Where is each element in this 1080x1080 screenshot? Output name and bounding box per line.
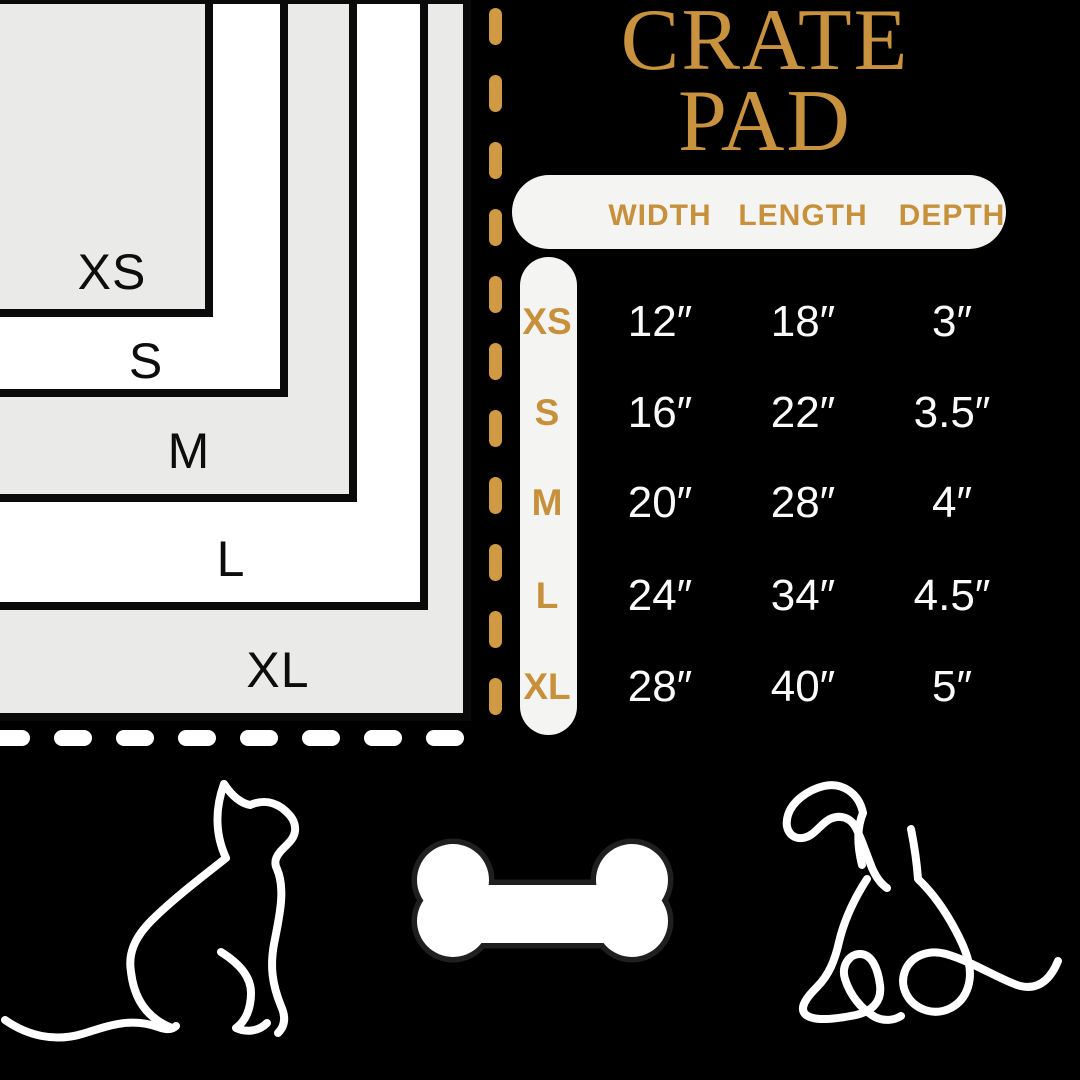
diagram-label-l: L bbox=[217, 530, 246, 588]
cell-s-length: 22″ bbox=[771, 388, 836, 438]
cat-line-icon bbox=[0, 770, 310, 1050]
cell-xl-length: 40″ bbox=[771, 662, 836, 712]
cell-l-depth: 4.5″ bbox=[914, 571, 991, 621]
row-label-xl: XL bbox=[523, 666, 570, 708]
cell-s-width: 16″ bbox=[628, 388, 693, 438]
dog-line-icon bbox=[763, 773, 1078, 1033]
cell-m-depth: 4″ bbox=[932, 478, 972, 528]
row-label-m: M bbox=[532, 482, 563, 524]
cell-xl-depth: 5″ bbox=[932, 662, 972, 712]
page-title-line1: CRATE bbox=[505, 0, 1025, 81]
row-label-l: L bbox=[536, 575, 559, 617]
page-title: CRATE PAD bbox=[505, 0, 1025, 162]
gold-dashed-divider bbox=[489, 8, 502, 715]
cell-m-length: 28″ bbox=[771, 478, 836, 528]
diagram-label-m: M bbox=[168, 422, 211, 480]
cell-xs-length: 18″ bbox=[771, 297, 836, 347]
column-header-length: LENGTH bbox=[738, 199, 867, 233]
row-label-xs: XS bbox=[522, 301, 571, 343]
table-header-pill: WIDTH LENGTH DEPTH bbox=[512, 175, 1006, 249]
column-header-width: WIDTH bbox=[608, 199, 711, 233]
page-title-line2: PAD bbox=[505, 81, 1025, 162]
bone-icon bbox=[398, 833, 688, 968]
white-dashed-divider bbox=[0, 730, 464, 746]
cell-xs-width: 12″ bbox=[628, 297, 693, 347]
crate-pad-size-chart: XS S M L XL CRATE PAD WIDTH LENGTH DEPTH… bbox=[0, 0, 1080, 1080]
column-header-depth: DEPTH bbox=[899, 199, 1006, 233]
cell-s-depth: 3.5″ bbox=[914, 388, 991, 438]
cell-l-length: 34″ bbox=[771, 571, 836, 621]
cell-l-width: 24″ bbox=[628, 571, 693, 621]
diagram-label-xs: XS bbox=[78, 243, 147, 301]
cell-m-width: 20″ bbox=[628, 478, 693, 528]
cell-xl-width: 28″ bbox=[628, 662, 693, 712]
diagram-label-xl: XL bbox=[246, 641, 309, 699]
diagram-label-s: S bbox=[129, 332, 163, 390]
row-label-s: S bbox=[535, 392, 560, 434]
cell-xs-depth: 3″ bbox=[932, 297, 972, 347]
